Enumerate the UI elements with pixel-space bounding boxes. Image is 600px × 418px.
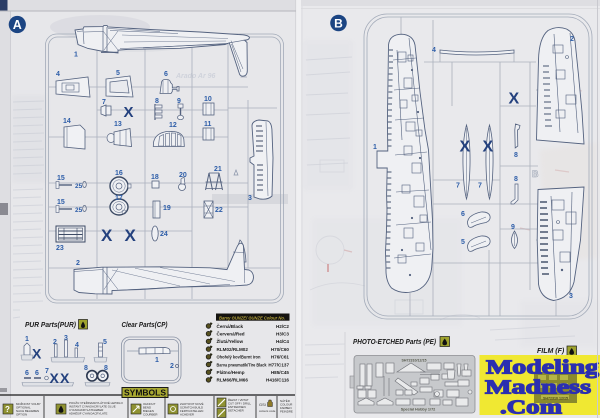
svg-text:PHOTO-ETCHED Parts (PE): PHOTO-ETCHED Parts (PE) (353, 337, 437, 346)
svg-text:24: 24 (160, 231, 168, 238)
svg-text:Barvy GUNZE/ GUNZE Colour No.: Barvy GUNZE/ GUNZE Colour No. (219, 315, 285, 320)
svg-text:Plátno/Hemp: Plátno/Hemp (217, 370, 245, 375)
svg-text:ACHEVER: ACHEVER (180, 413, 194, 417)
svg-text:9: 9 (511, 224, 515, 231)
svg-text:1: 1 (25, 336, 29, 343)
svg-text:8: 8 (514, 176, 518, 183)
svg-text:PEINDRE: PEINDRE (280, 410, 293, 414)
svg-text:5: 5 (103, 339, 107, 346)
svg-text:3: 3 (248, 195, 252, 202)
svg-text:4: 4 (56, 71, 60, 78)
svg-text:H416/C116: H416/C116 (266, 378, 289, 383)
svg-text:7: 7 (45, 368, 49, 375)
svg-text:H70/C60: H70/C60 (271, 347, 290, 352)
svg-text:6: 6 (164, 71, 168, 78)
svg-text:16: 16 (115, 170, 123, 177)
svg-text:6: 6 (461, 211, 465, 218)
svg-text:X: X (32, 346, 42, 362)
svg-text:6: 6 (35, 370, 39, 377)
svg-text:7: 7 (478, 183, 482, 190)
svg-text:A: A (13, 18, 22, 32)
svg-text:Arado Ar 96: Arado Ar 96 (175, 73, 216, 80)
svg-text:Special Hobby 1/72: Special Hobby 1/72 (401, 408, 436, 412)
svg-text:RLM66/RLM66: RLM66/RLM66 (217, 378, 249, 383)
svg-text:25: 25 (75, 183, 83, 190)
svg-text:Madness: Madness (485, 378, 592, 399)
svg-text:7: 7 (102, 99, 106, 106)
svg-text:18: 18 (151, 174, 159, 181)
svg-text:Ohořelý kov/Burnt Iron: Ohořelý kov/Burnt Iron (217, 355, 261, 360)
svg-text:GSi: GSi (259, 402, 266, 407)
svg-text:H2/C2: H2/C2 (276, 324, 289, 329)
svg-text:6: 6 (25, 370, 29, 377)
svg-text:17: 17 (115, 195, 123, 202)
svg-text:Červená/Red: Červená/Red (217, 331, 245, 337)
svg-text:X: X (125, 226, 137, 245)
svg-text:DETACHER: DETACHER (228, 409, 244, 413)
svg-text:SH72310/12/15: SH72310/12/15 (402, 359, 427, 363)
svg-text:Barva pneumatik/Tire Black: Barva pneumatik/Tire Black (217, 362, 267, 367)
svg-text:B: B (334, 17, 343, 31)
svg-text:9: 9 (177, 98, 181, 105)
svg-text:X: X (124, 104, 134, 121)
svg-text:15: 15 (57, 175, 65, 182)
svg-text:5: 5 (116, 70, 120, 77)
svg-text:23: 23 (56, 245, 64, 252)
svg-text:COURBER: COURBER (143, 413, 157, 417)
svg-text:X: X (509, 91, 520, 108)
svg-text:1: 1 (373, 144, 377, 151)
svg-text:1: 1 (155, 357, 159, 364)
svg-text:10: 10 (204, 96, 212, 103)
svg-text:1: 1 (74, 52, 78, 59)
svg-text:5: 5 (461, 239, 465, 246)
svg-text:H76/C61: H76/C61 (271, 355, 290, 360)
svg-text:H4/C4: H4/C4 (276, 339, 289, 344)
svg-text:colours code: colours code (259, 409, 276, 413)
svg-text:B: B (532, 169, 539, 179)
svg-text:15: 15 (57, 199, 65, 206)
svg-text:SYMBOLS: SYMBOLS (124, 388, 166, 398)
svg-text:8: 8 (514, 152, 518, 159)
svg-text:X: X (60, 370, 70, 386)
svg-text:Žlutá/Yellow: Žlutá/Yellow (217, 337, 244, 344)
svg-text:.Com: .Com (500, 398, 562, 418)
svg-text:X: X (483, 139, 494, 156)
svg-text:12: 12 (169, 122, 177, 129)
svg-text:19: 19 (163, 205, 171, 212)
svg-text:RLM02/RLM02: RLM02/RLM02 (217, 347, 249, 352)
svg-text:13: 13 (114, 121, 122, 128)
svg-text:11: 11 (204, 121, 212, 128)
svg-text:H77/C137: H77/C137 (268, 362, 289, 367)
svg-text:8: 8 (84, 365, 88, 372)
svg-text:22: 22 (215, 207, 223, 214)
svg-text:H85/C45: H85/C45 (271, 370, 290, 375)
svg-text:3: 3 (569, 293, 573, 300)
svg-text:FILM (F): FILM (F) (537, 348, 565, 355)
svg-text:X: X (101, 226, 113, 245)
svg-text:25: 25 (75, 207, 83, 214)
svg-text:ADHÉSIF CYANOACRYLATE: ADHÉSIF CYANOACRYLATE (69, 411, 107, 416)
svg-text:21: 21 (214, 166, 222, 173)
svg-text:2: 2 (76, 260, 80, 267)
svg-text:OPTION: OPTION (16, 413, 27, 417)
svg-text:?: ? (5, 405, 10, 414)
svg-text:7: 7 (456, 183, 460, 190)
svg-text:H3/C3: H3/C3 (276, 332, 289, 337)
svg-text:2: 2 (170, 363, 174, 370)
svg-text:2: 2 (570, 36, 574, 43)
svg-text:8: 8 (155, 98, 159, 105)
svg-text:Modeling: Modeling (486, 358, 599, 379)
svg-text:Clear Parts(CP): Clear Parts(CP) (122, 322, 169, 329)
svg-text:4: 4 (432, 47, 436, 54)
svg-text:PUR Parts(PUR): PUR Parts(PUR) (25, 322, 77, 329)
svg-text:Černá/Black: Černá/Black (217, 323, 244, 329)
svg-text:14: 14 (63, 118, 71, 125)
svg-text:X: X (460, 139, 471, 156)
svg-text:20: 20 (179, 172, 187, 179)
svg-text:X: X (50, 370, 60, 386)
